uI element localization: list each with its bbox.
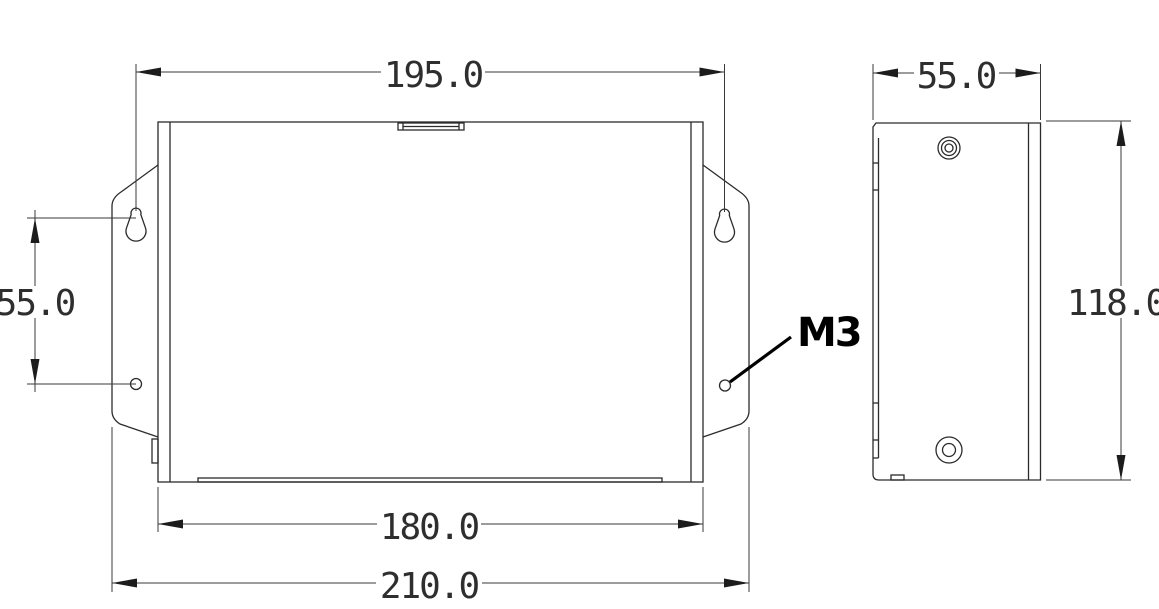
dim-label-195: 195.0 (384, 55, 483, 96)
top-latch-tab (398, 123, 464, 130)
dim-label-55-side: 55.0 (917, 56, 996, 97)
keyhole-slot-left (126, 208, 146, 241)
front-view (112, 122, 749, 482)
arrowhead-right (678, 520, 703, 529)
dimension-55-left: 55.0 (0, 210, 136, 392)
arrowhead-down (1117, 455, 1126, 480)
arrowhead-up (31, 218, 40, 243)
dim-label-210: 210.0 (380, 566, 479, 607)
arrowhead-left (136, 68, 161, 77)
arrowhead-right (700, 68, 725, 77)
leader-line (730, 337, 791, 382)
enclosure-front-outline (158, 122, 703, 482)
m3-callout-label: M3 (797, 310, 861, 356)
keyhole-slot-right (715, 209, 735, 242)
mounting-ear-right (703, 165, 749, 437)
dimension-118: 118.0 (1046, 121, 1159, 480)
arrowhead-down (31, 359, 40, 384)
arrowhead-left (112, 579, 137, 588)
drawing-canvas: 195.0 55.0 180.0 210.0 55.0 (0, 0, 1159, 609)
left-edge-tab (152, 439, 158, 463)
dim-label-180: 180.0 (380, 507, 479, 548)
screw-head-bottom (936, 437, 962, 463)
dimension-55-side: 55.0 (873, 56, 1041, 120)
bottom-recess-lip (198, 478, 662, 482)
arrowhead-right (1016, 69, 1041, 78)
dim-label-55-left: 55.0 (0, 283, 75, 324)
arrowhead-left (873, 69, 898, 78)
mounting-ear-left (112, 165, 158, 437)
screw-head-top (938, 137, 960, 159)
m3-hole-right (720, 380, 731, 391)
enclosure-side-outline (873, 123, 1041, 480)
arrowhead-up (1117, 121, 1126, 146)
side-view (873, 123, 1041, 480)
arrowhead-right (724, 579, 749, 588)
side-bottom-tab (891, 475, 904, 480)
dim-label-118: 118.0 (1067, 283, 1159, 324)
arrowhead-left (158, 520, 183, 529)
dimension-180: 180.0 (158, 487, 703, 548)
dimension-195: 195.0 (136, 55, 725, 212)
